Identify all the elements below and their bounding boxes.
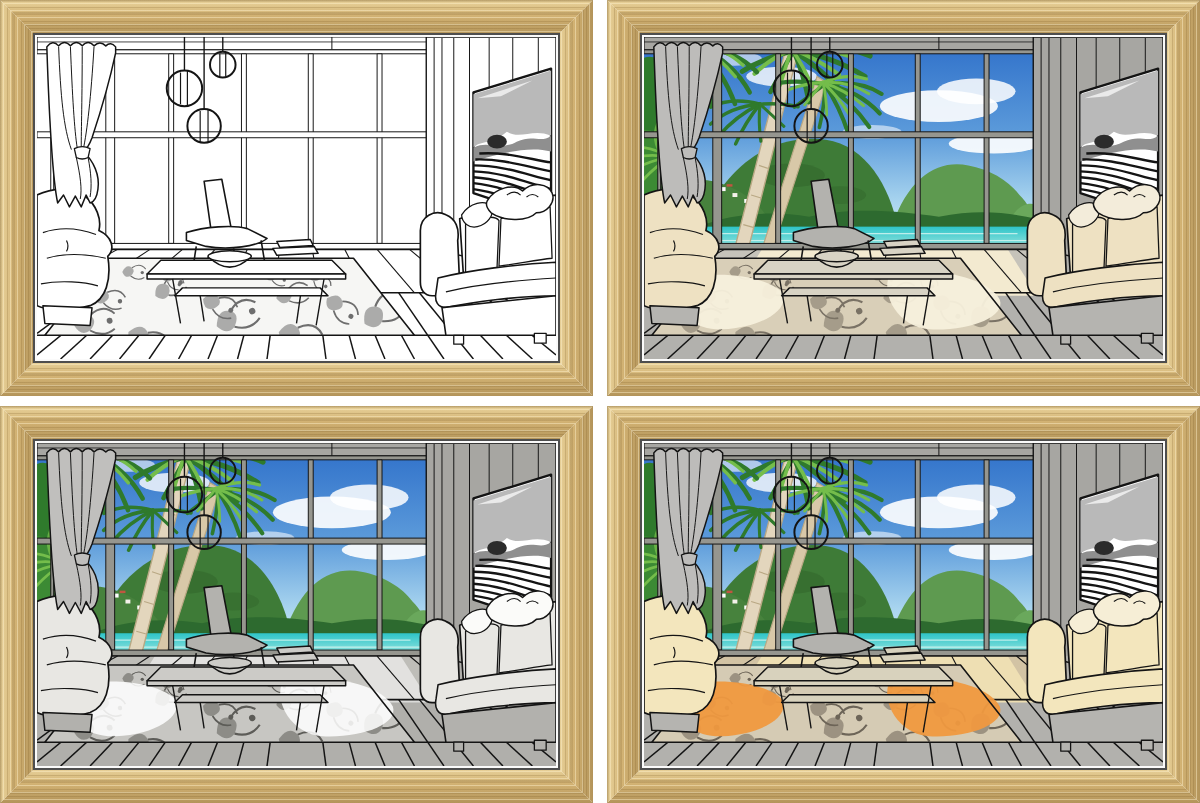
- artwork-scene-lit-warm: [644, 37, 1163, 359]
- frame-bar-right: [1165, 406, 1200, 803]
- frame-bar-bottom: [0, 768, 593, 803]
- wood-frame-bottom-right: [607, 406, 1200, 803]
- frame-bar-left: [607, 0, 642, 396]
- frame-bar-right: [558, 406, 593, 803]
- artwork-area: [642, 441, 1165, 768]
- artwork-scene-lit-full: [644, 443, 1163, 766]
- frame-bar-left: [0, 0, 35, 396]
- frame-bar-left: [0, 406, 35, 803]
- frame-bar-top: [607, 0, 1200, 35]
- artwork-scene-lit-gray: [37, 443, 556, 766]
- artwork-scene-sketch: [37, 37, 556, 359]
- wood-frame-bottom-left: [0, 406, 593, 803]
- frame-bar-bottom: [607, 361, 1200, 396]
- frame-bar-right: [1165, 0, 1200, 396]
- frame-bar-left: [607, 406, 642, 803]
- artwork-area: [35, 35, 558, 361]
- frame-bar-bottom: [0, 361, 593, 396]
- artwork-area: [35, 441, 558, 768]
- frame-bar-top: [0, 406, 593, 441]
- product-image-grid: [0, 0, 1200, 803]
- wood-frame-top-left: [0, 0, 593, 396]
- frame-bar-right: [558, 0, 593, 396]
- frame-bar-bottom: [607, 768, 1200, 803]
- wood-frame-top-right: [607, 0, 1200, 396]
- frame-bar-top: [0, 0, 593, 35]
- frame-bar-top: [607, 406, 1200, 441]
- artwork-area: [642, 35, 1165, 361]
